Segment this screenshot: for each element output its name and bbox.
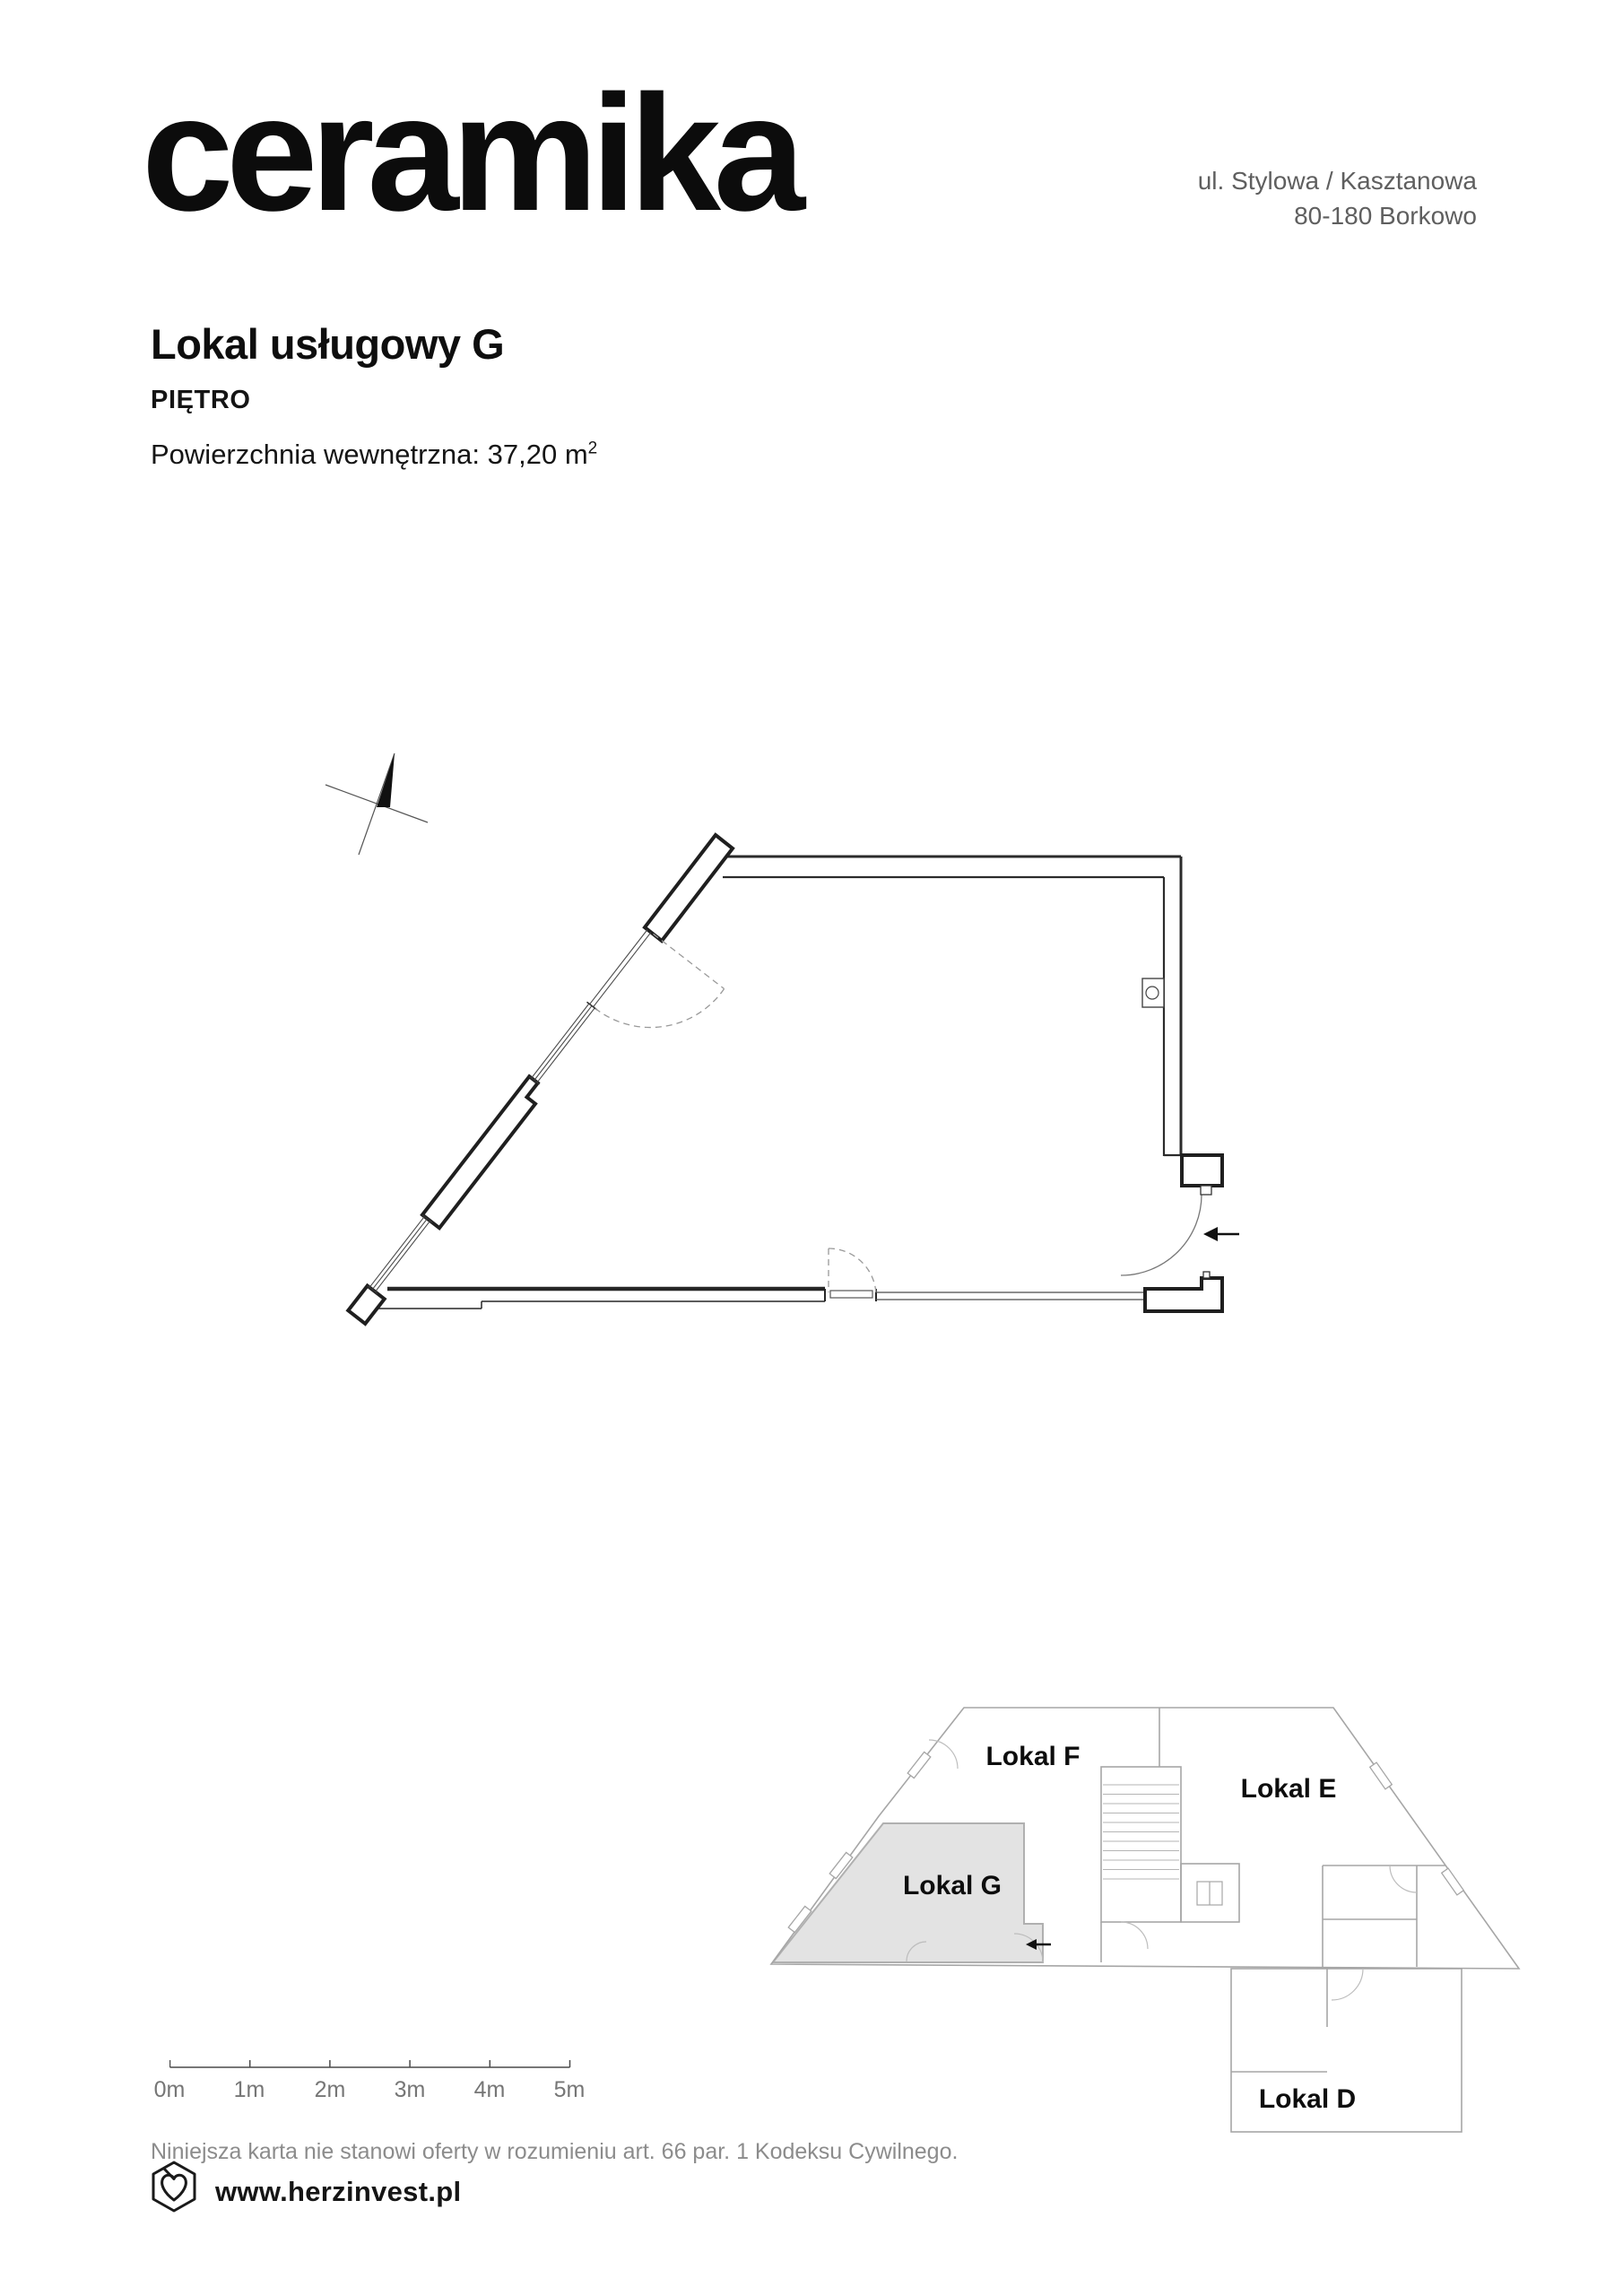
north-arrow-icon — [325, 753, 428, 855]
electrical-box-icon — [1142, 978, 1164, 1007]
scale-bar-labels: 0m 1m 2m 3m 4m 5m — [147, 2077, 613, 2104]
scale-label-4m: 4m — [467, 2077, 512, 2103]
area-exponent: 2 — [588, 439, 598, 458]
scale-label-1m: 1m — [227, 2077, 272, 2103]
website-url: www.herzinvest.pl — [215, 2176, 461, 2208]
keyplan-label-lokal-e: Lokal E — [1241, 1774, 1337, 1804]
keyplan-partitions — [1101, 1708, 1462, 2132]
entrance-door-swing — [1121, 1195, 1202, 1275]
hexagon-heart-logo-icon — [151, 2160, 197, 2213]
keyplan-label-lokal-f: Lokal F — [985, 1742, 1080, 1771]
area-line: Powierzchnia wewnętrzna: 37,20 m2 — [151, 439, 597, 471]
scale-label-0m: 0m — [147, 2077, 192, 2103]
interior-door-leaf — [830, 1291, 872, 1298]
keyplan-label-lokal-d: Lokal D — [1259, 2084, 1356, 2114]
thick-wall-segments — [348, 835, 1222, 1324]
scale-label-3m: 3m — [387, 2077, 432, 2103]
interior-door-swing — [829, 1248, 876, 1296]
area-value: 37,20 m — [480, 439, 588, 470]
door-hinge-bottom — [1203, 1272, 1210, 1278]
scale-label-2m: 2m — [308, 2077, 352, 2103]
keyplan-label-lokal-g: Lokal G — [903, 1871, 1002, 1900]
address-line-2: 80-180 Borkowo — [1198, 199, 1477, 234]
bottom-wall — [350, 1289, 1145, 1309]
brand-logo: ceramika — [142, 70, 798, 235]
keyplan-stairs — [1103, 1785, 1179, 1879]
key-plan: Lokal F Lokal E Lokal G Lokal D — [735, 1641, 1542, 2215]
diagonal-door-swing — [595, 934, 725, 1027]
perimeter-walls — [712, 857, 1183, 1156]
area-label: Powierzchnia wewnętrzna: — [151, 439, 480, 470]
entrance-arrow-icon — [1203, 1227, 1239, 1241]
address-line-1: ul. Stylowa / Kasztanowa — [1198, 164, 1477, 199]
keyplan-elevator-icon — [1197, 1882, 1222, 1905]
floor-label: PIĘTRO — [151, 386, 251, 415]
unit-title: Lokal usługowy G — [151, 319, 504, 369]
door-hinge-top — [1201, 1186, 1211, 1195]
main-floorplan — [323, 744, 1309, 1372]
scale-bar — [169, 2057, 571, 2070]
legal-disclaimer: Niniejsza karta nie stanowi oferty w roz… — [151, 2139, 958, 2165]
project-address: ul. Stylowa / Kasztanowa 80-180 Borkowo — [1198, 164, 1477, 233]
scale-label-5m: 5m — [547, 2077, 592, 2103]
